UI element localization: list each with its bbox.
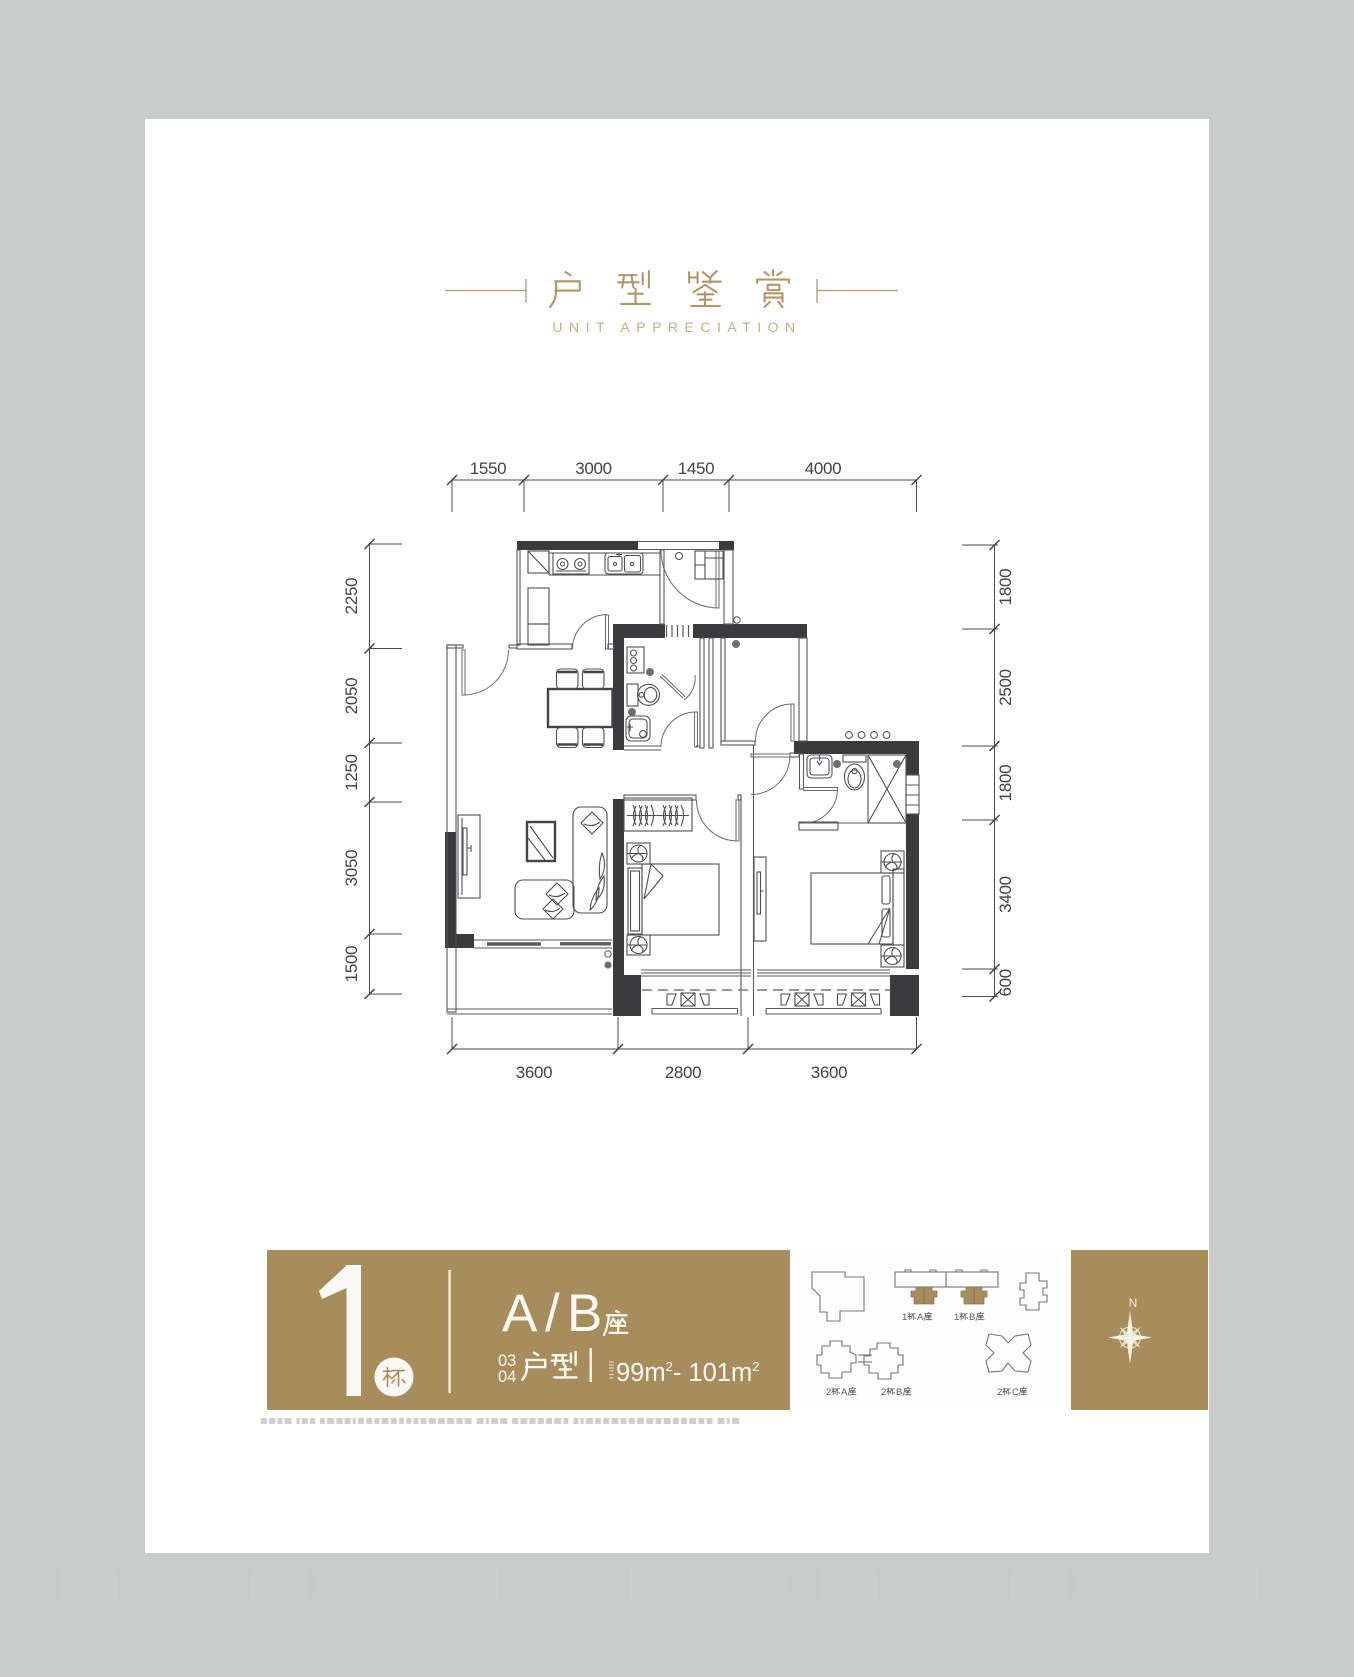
svg-text:1800: 1800 bbox=[996, 569, 1015, 606]
svg-text:04: 04 bbox=[498, 1368, 516, 1386]
svg-text:N: N bbox=[1129, 1296, 1138, 1310]
svg-text:2800: 2800 bbox=[665, 1063, 702, 1082]
svg-text:3600: 3600 bbox=[516, 1063, 553, 1082]
svg-text:1450: 1450 bbox=[678, 459, 715, 478]
svg-text:UNIT APPRECIATION: UNIT APPRECIATION bbox=[552, 319, 801, 335]
svg-text:B: B bbox=[896, 1387, 902, 1398]
svg-text:2: 2 bbox=[881, 1387, 886, 1398]
svg-text:1: 1 bbox=[954, 1312, 959, 1323]
svg-text:1500: 1500 bbox=[342, 946, 361, 983]
svg-text:C: C bbox=[1012, 1387, 1019, 1398]
svg-text:4000: 4000 bbox=[805, 459, 842, 478]
svg-text:1800: 1800 bbox=[996, 765, 1015, 802]
svg-text:3000: 3000 bbox=[575, 459, 612, 478]
svg-text:1550: 1550 bbox=[470, 459, 507, 478]
svg-text:2: 2 bbox=[997, 1387, 1002, 1398]
svg-text:3050: 3050 bbox=[342, 850, 361, 887]
svg-text:A: A bbox=[917, 1312, 924, 1323]
svg-text:1: 1 bbox=[902, 1312, 907, 1323]
svg-text:2050: 2050 bbox=[342, 678, 361, 715]
svg-text:2: 2 bbox=[826, 1387, 831, 1398]
svg-text:600: 600 bbox=[996, 969, 1015, 996]
svg-text:1250: 1250 bbox=[342, 754, 361, 791]
svg-text:2500: 2500 bbox=[996, 669, 1015, 706]
svg-text:3400: 3400 bbox=[996, 876, 1015, 913]
svg-text:B: B bbox=[969, 1312, 975, 1323]
svg-text:A/B: A/B bbox=[502, 1284, 602, 1343]
svg-text:99m2- 101m2: 99m2- 101m2 bbox=[616, 1359, 759, 1387]
svg-text:2250: 2250 bbox=[342, 578, 361, 615]
svg-text:3600: 3600 bbox=[811, 1063, 848, 1082]
svg-text:A: A bbox=[841, 1387, 848, 1398]
